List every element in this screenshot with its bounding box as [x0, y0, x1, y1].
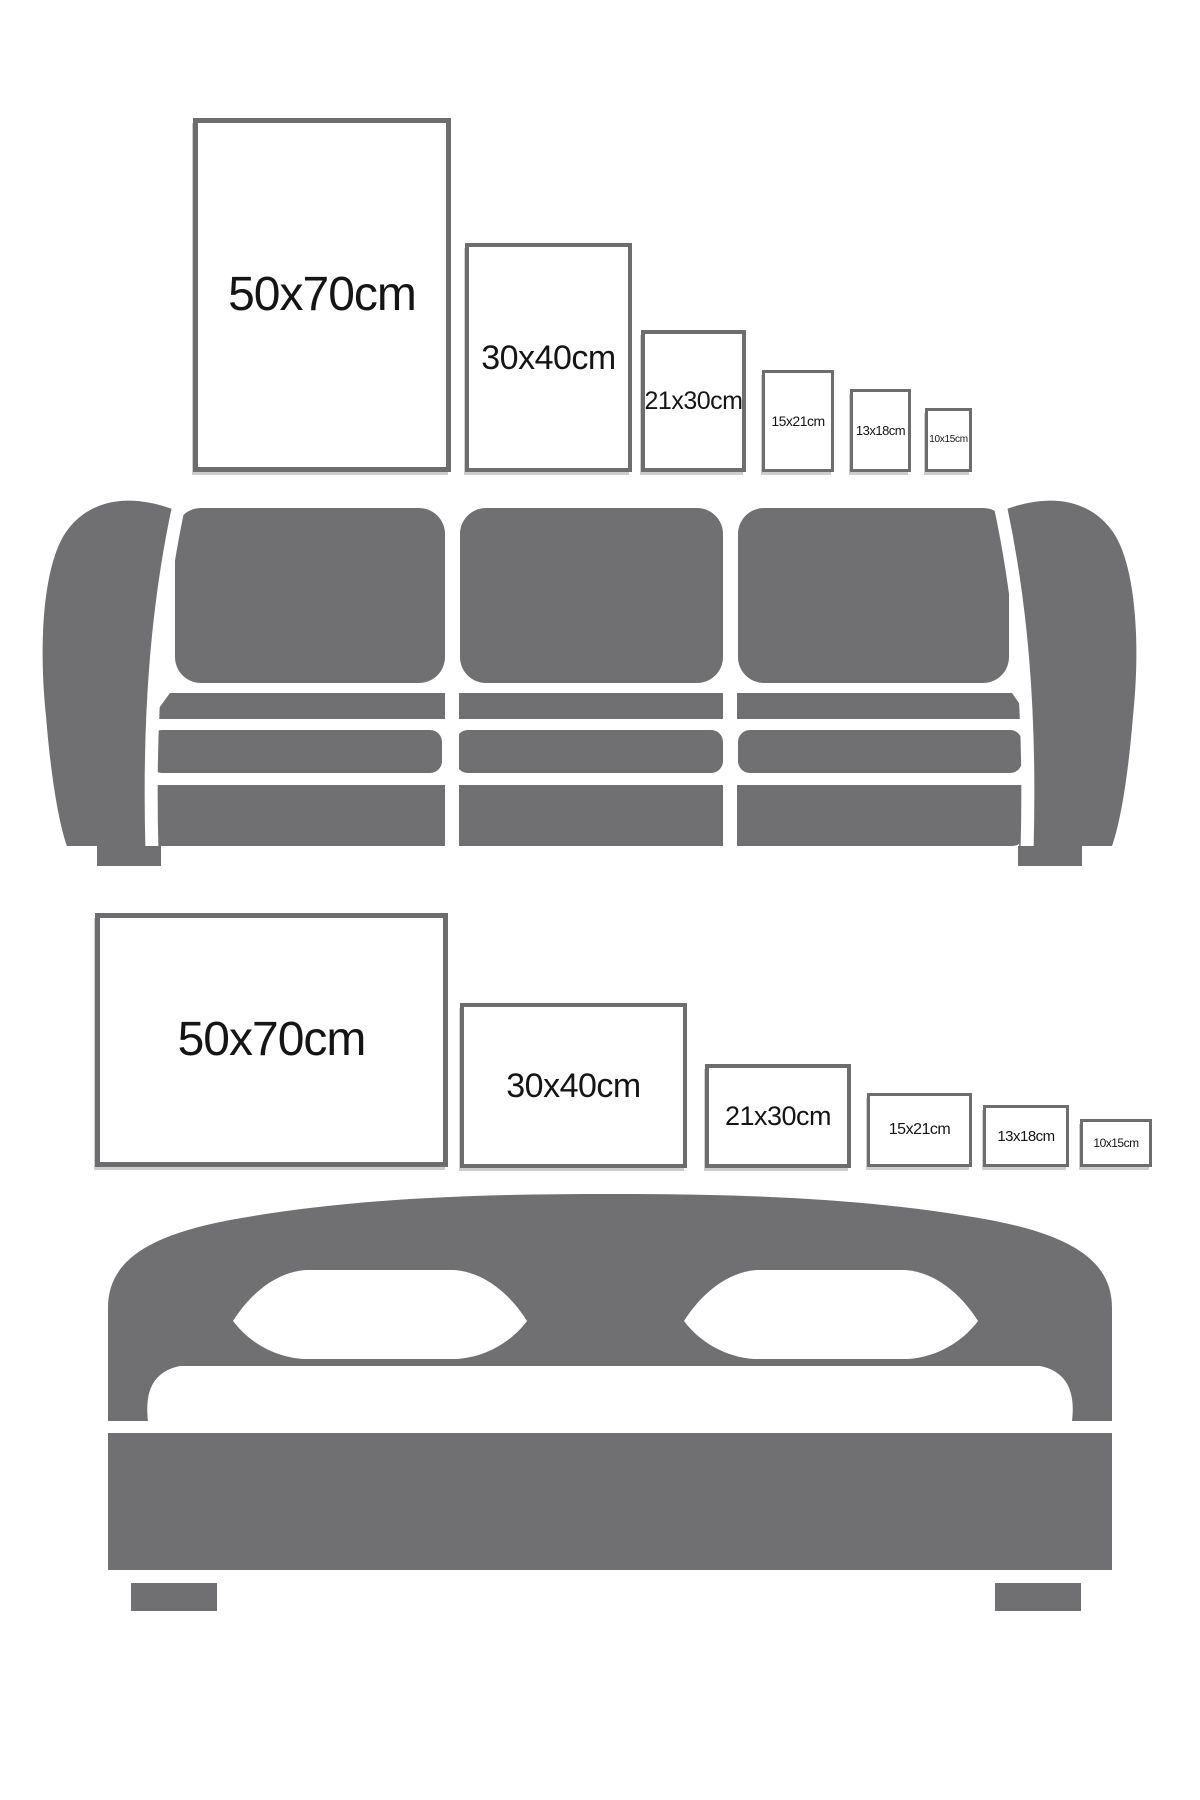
- frame-size-label: 15x21cm: [889, 1122, 950, 1138]
- frame-size-label: 21x30cm: [725, 1103, 831, 1130]
- frame-size-label: 30x40cm: [506, 1069, 640, 1103]
- frame-size-label: 13x18cm: [856, 424, 905, 437]
- poster-frame-landscape-13x18: 13x18cm: [983, 1105, 1069, 1167]
- poster-frame-landscape-50x70: 50x70cm: [95, 913, 448, 1167]
- frame-size-label: 21x30cm: [645, 389, 743, 414]
- poster-frame-landscape-10x15: 10x15cm: [1080, 1119, 1152, 1167]
- sofa-icon: [43, 500, 1137, 866]
- poster-frame-landscape-21x30: 21x30cm: [705, 1064, 851, 1168]
- frame-size-label: 10x15cm: [929, 435, 967, 445]
- poster-frame-portrait-15x21: 15x21cm: [762, 370, 834, 472]
- frame-size-label: 50x70cm: [178, 1016, 366, 1064]
- frame-size-label: 10x15cm: [1093, 1137, 1138, 1149]
- poster-frame-portrait-30x40: 30x40cm: [465, 243, 632, 472]
- poster-frame-landscape-30x40: 30x40cm: [460, 1003, 687, 1168]
- frame-size-label: 50x70cm: [228, 271, 416, 319]
- frame-size-label: 13x18cm: [997, 1129, 1054, 1144]
- frame-size-label: 15x21cm: [771, 414, 824, 428]
- poster-frame-portrait-10x15: 10x15cm: [925, 408, 972, 472]
- poster-frame-portrait-13x18: 13x18cm: [850, 389, 911, 472]
- poster-frame-portrait-50x70: 50x70cm: [193, 118, 451, 472]
- poster-frame-landscape-15x21: 15x21cm: [867, 1093, 972, 1167]
- poster-frame-portrait-21x30: 21x30cm: [641, 330, 746, 472]
- bed-icon: [108, 1194, 1112, 1611]
- poster-size-guide: 50x70cm 30x40cm 21x30cm 15x21cm 13x18cm …: [0, 0, 1200, 1800]
- frame-size-label: 30x40cm: [481, 341, 615, 375]
